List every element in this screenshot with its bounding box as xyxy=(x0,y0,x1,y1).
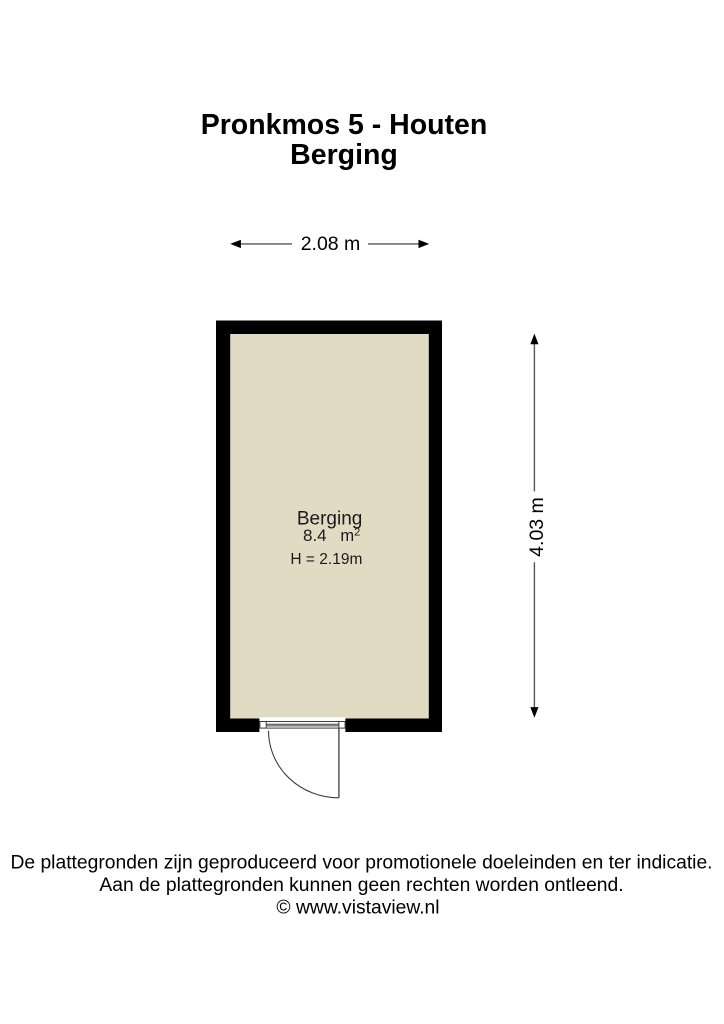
svg-text:Aan de plattegronden kunnen ge: Aan de plattegronden kunnen geen rechten… xyxy=(99,875,623,896)
svg-text:Berging: Berging xyxy=(290,139,398,171)
svg-text:Pronkmos 5 - Houten: Pronkmos 5 - Houten xyxy=(201,109,488,141)
svg-text:2.08 m: 2.08 m xyxy=(301,233,361,255)
svg-text:De plattegronden zijn geproduc: De plattegronden zijn geproduceerd voor … xyxy=(10,853,712,874)
svg-text:H = 2.19m: H = 2.19m xyxy=(290,551,362,568)
svg-text:8.4: 8.4 xyxy=(303,526,327,545)
svg-text:4.03 m: 4.03 m xyxy=(526,497,548,557)
svg-text:© www.vistaview.nl: © www.vistaview.nl xyxy=(276,898,439,919)
